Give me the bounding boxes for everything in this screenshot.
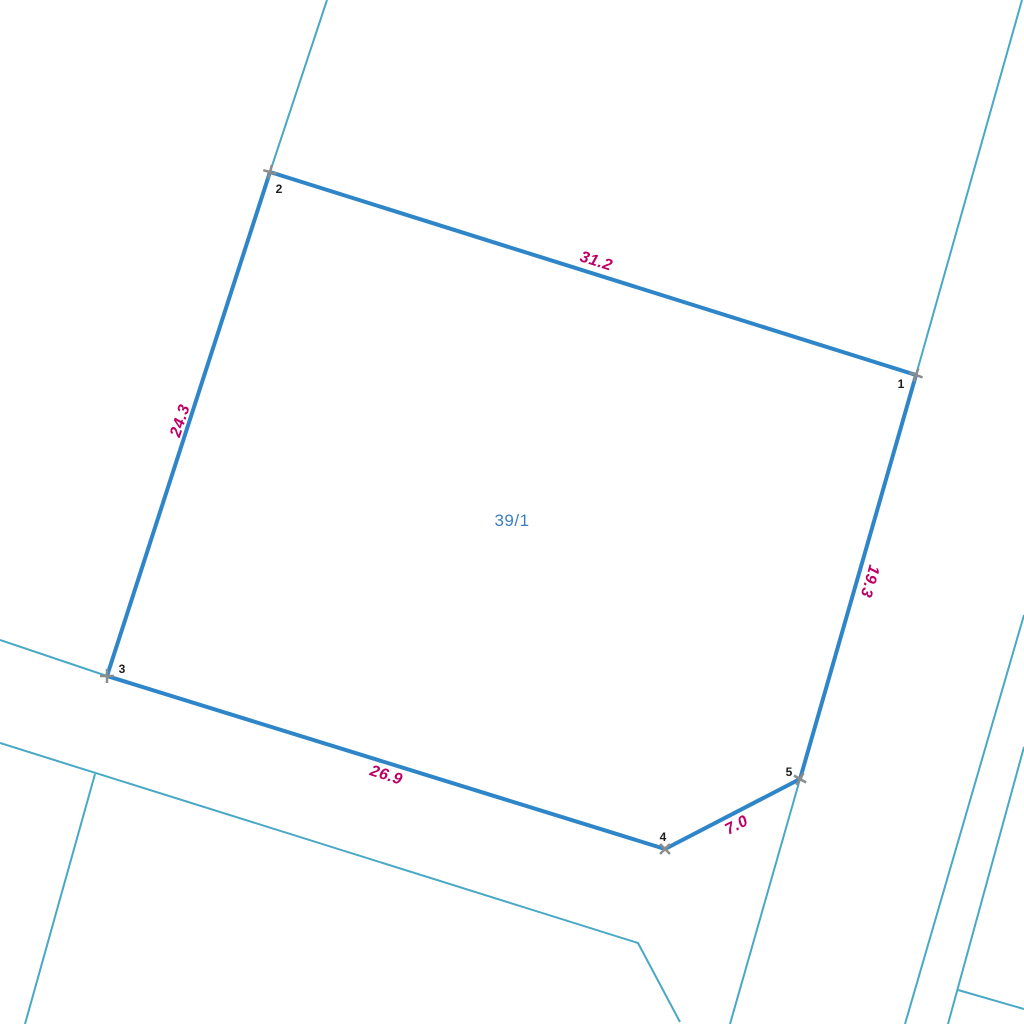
vertex-marker-3 (100, 669, 114, 683)
boundary-line-road-lower-line (0, 743, 680, 1022)
boundary-line-road-upper-line (0, 640, 107, 676)
boundary-line-right-boundary-2 (948, 747, 1024, 1024)
boundary-line-ext-below-vertex-5 (730, 779, 800, 1024)
cadastral-map-viewport[interactable]: 39/1 1234531.224.319.326.97.0 (0, 0, 1024, 1024)
boundary-line-right-branch (958, 990, 1024, 1009)
boundary-line-ext-above-vertex-2 (270, 0, 327, 172)
boundary-line-branch-lower-left (25, 774, 95, 1024)
map-canvas[interactable] (0, 0, 1024, 1024)
boundary-line-ext-above-vertex-1 (916, 0, 1022, 375)
parcel-boundary[interactable] (107, 172, 916, 849)
vertex-marker-4 (655, 839, 675, 859)
